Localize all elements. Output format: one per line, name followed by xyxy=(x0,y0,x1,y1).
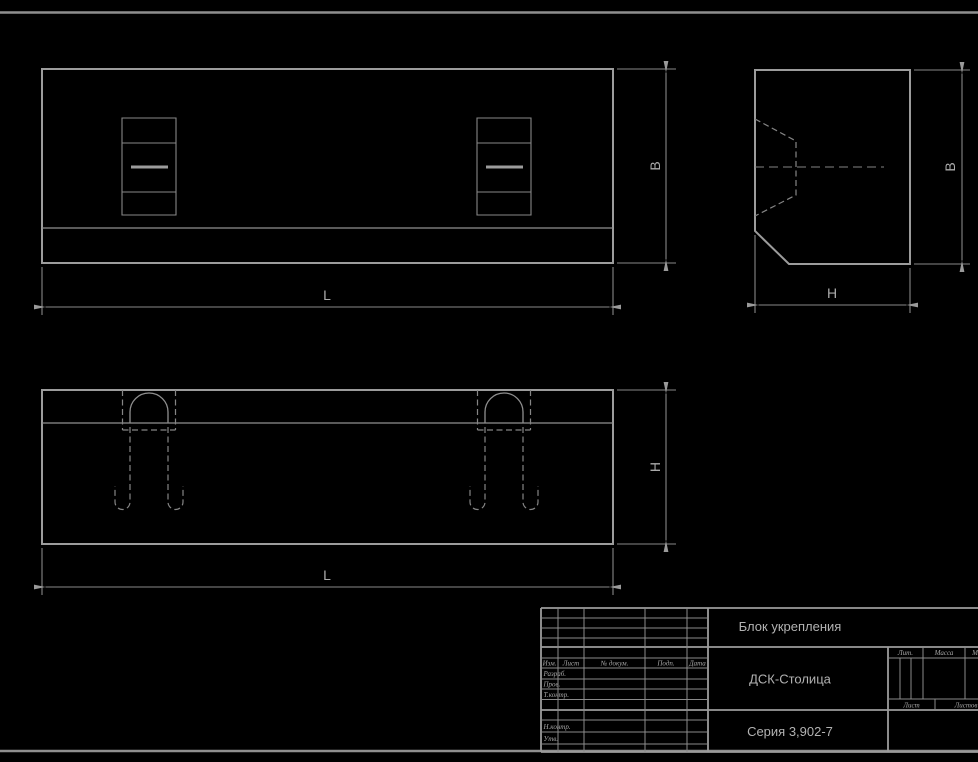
tb-col-izm: Изм. xyxy=(542,660,557,668)
side-dim-width: В xyxy=(914,70,970,264)
plan-dim-length: L xyxy=(42,267,613,315)
plan-dim-width-label: В xyxy=(647,161,663,170)
side-dim-depth-extensions xyxy=(755,235,910,313)
front-dim-length-label: L xyxy=(323,567,331,583)
front-right-loop-arch xyxy=(485,393,523,423)
tb-row-nkontr: Н.контр. xyxy=(543,723,571,731)
tb-sheets-label: Листов xyxy=(954,702,978,710)
tb-col-dokum: № докум. xyxy=(600,660,629,668)
front-outline xyxy=(42,390,613,544)
tb-row-prov: Пров. xyxy=(543,681,561,689)
side-dim-depth: H xyxy=(755,235,910,313)
side-dim-depth-label: H xyxy=(827,285,837,301)
tb-masshtab-label: Масштаб xyxy=(971,649,978,657)
drawing-series: Серия 3,902-7 xyxy=(747,724,833,739)
front-left-loop xyxy=(115,390,183,510)
front-dim-length: L xyxy=(42,548,613,595)
tb-row-razrab: Разраб. xyxy=(543,670,567,678)
tb-col-list: Лист xyxy=(562,660,579,668)
tb-row-utv: Утв. xyxy=(544,735,559,743)
tb-massa-label: Масса xyxy=(934,649,954,657)
tb-row-tkontr: Т.контр. xyxy=(544,691,570,699)
engineering-drawing: В L В H xyxy=(0,0,978,762)
front-left-loop-leg-right xyxy=(168,427,183,510)
front-left-loop-leg-left xyxy=(115,427,130,510)
tb-sheet-label: Лист xyxy=(902,702,919,710)
drawing-title: Блок укрепления xyxy=(739,619,842,634)
view-front: H L xyxy=(42,390,676,595)
plan-dim-length-label: L xyxy=(323,287,331,303)
plan-dim-width: В xyxy=(617,69,676,263)
tb-col-podp: Подп. xyxy=(656,660,675,668)
drawing-organization: ДСК-Столица xyxy=(749,672,832,687)
front-dim-height: H xyxy=(617,390,676,544)
front-right-loop-leg-right xyxy=(523,427,538,510)
plan-outline xyxy=(42,69,613,263)
front-left-loop-arch xyxy=(130,393,168,423)
title-block: Изм. Лист № докум. Подп. Дата Разраб. Пр… xyxy=(541,608,978,752)
side-dim-width-label: В xyxy=(942,162,958,171)
tb-col-data: Дата xyxy=(688,660,706,668)
front-right-loop xyxy=(470,390,538,510)
view-plan: В L xyxy=(42,69,676,315)
front-right-loop-leg-left xyxy=(470,427,485,510)
tb-lit-label: Лит. xyxy=(897,649,913,657)
front-dim-height-label: H xyxy=(647,462,663,472)
view-side: В H xyxy=(755,70,970,313)
drawing-sheet: В L В H xyxy=(0,0,978,762)
